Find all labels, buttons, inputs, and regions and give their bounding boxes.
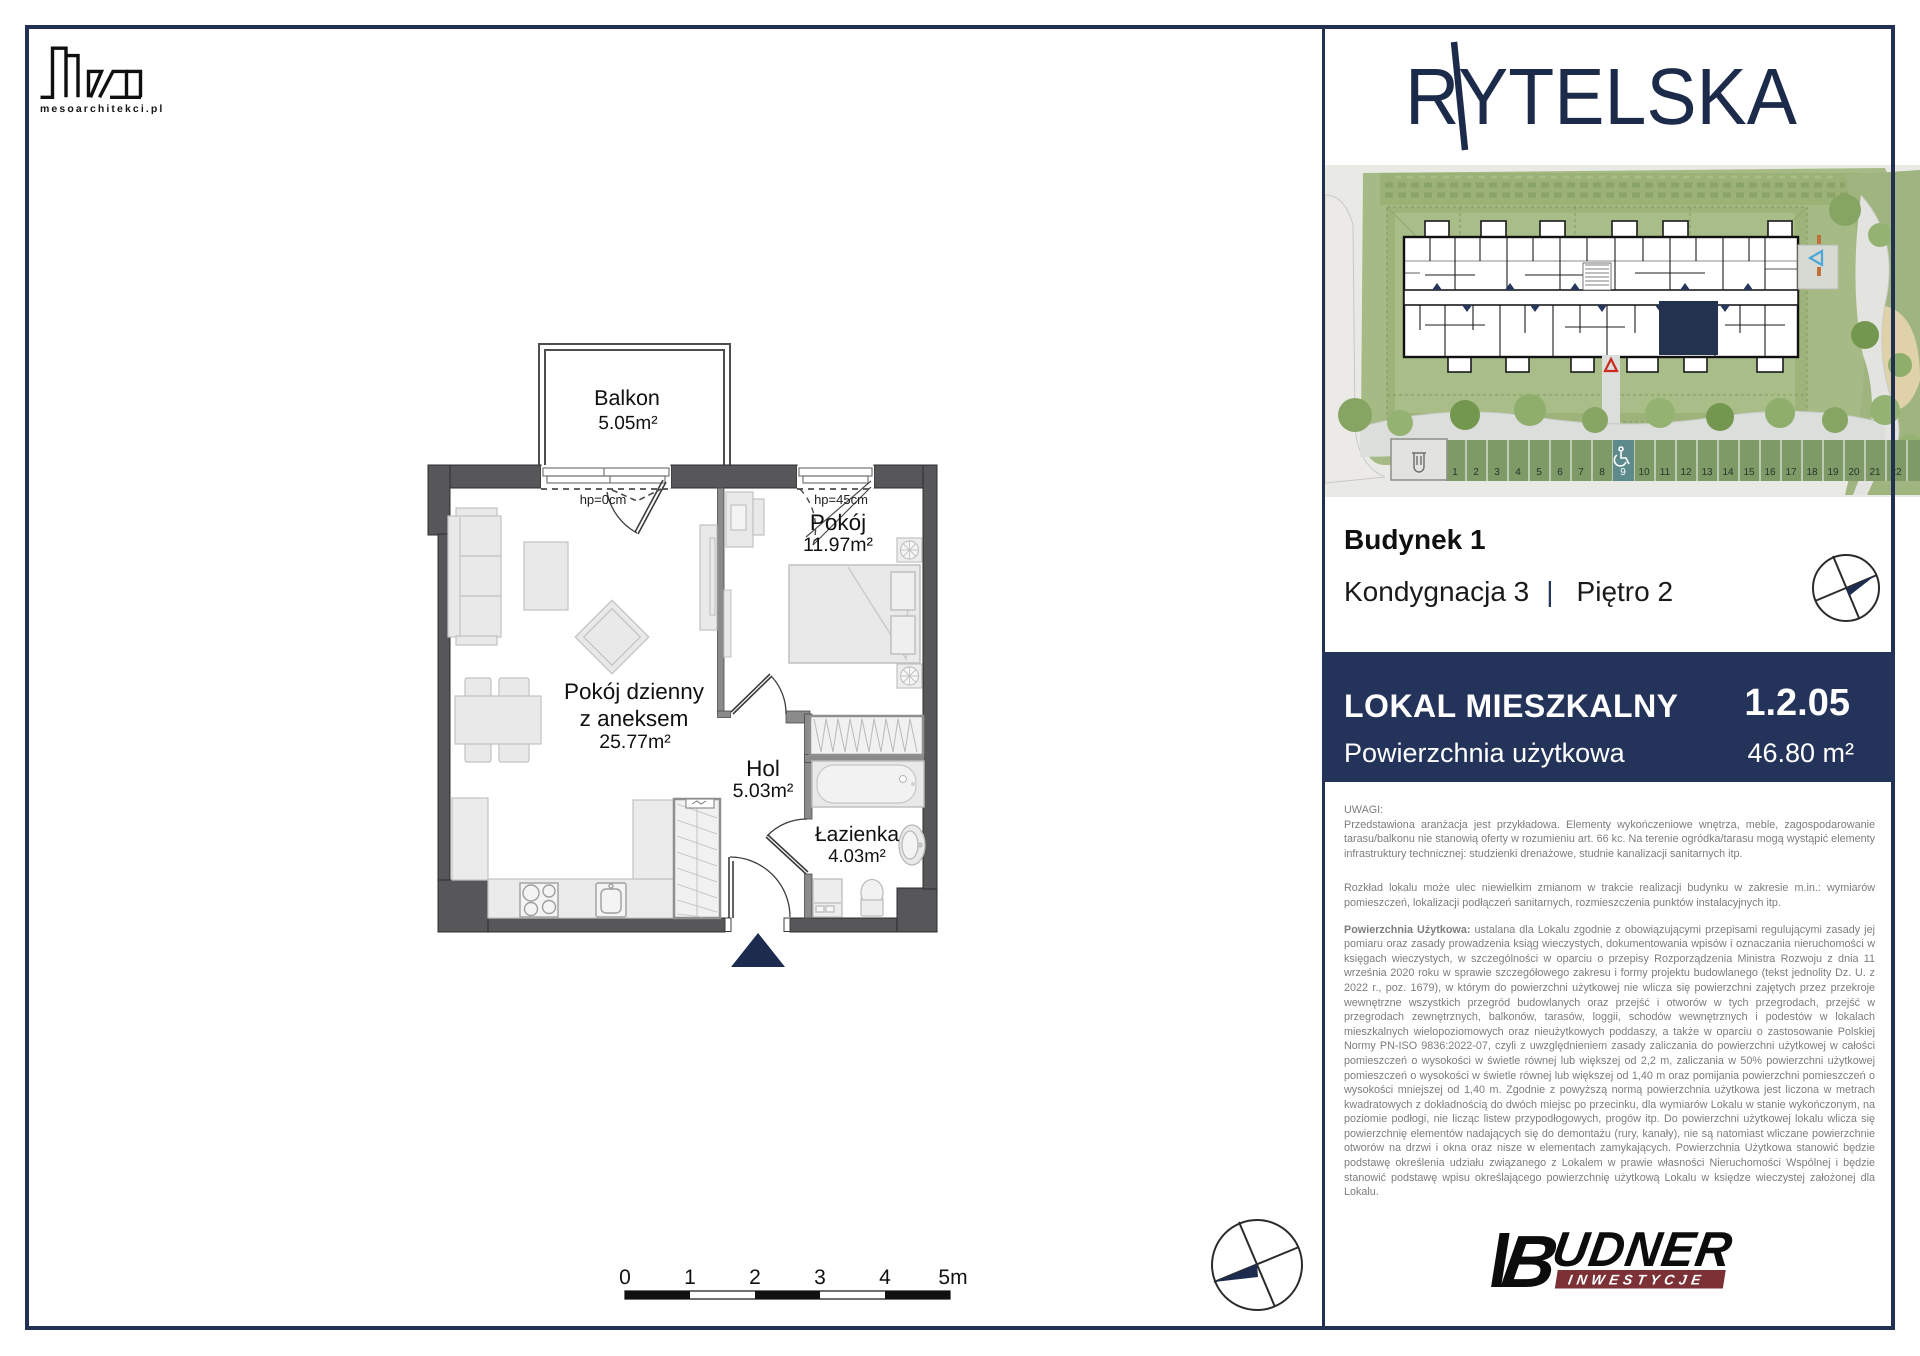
svg-text:25.77m²: 25.77m² xyxy=(599,731,671,753)
svg-text:4.03m²: 4.03m² xyxy=(828,845,886,866)
svg-text:Pokój: Pokój xyxy=(810,510,866,535)
svg-text:hp=0cm: hp=0cm xyxy=(580,492,627,507)
svg-text:1: 1 xyxy=(684,1266,696,1289)
svg-text:hp=45cm: hp=45cm xyxy=(814,492,868,507)
svg-text:Łazienka: Łazienka xyxy=(815,823,899,846)
svg-text:11.97m²: 11.97m² xyxy=(803,534,874,556)
svg-text:2: 2 xyxy=(749,1266,761,1289)
svg-text:UDNER: UDNER xyxy=(1549,1223,1737,1277)
svg-text:5.05m²: 5.05m² xyxy=(598,413,657,434)
svg-text:5.03m²: 5.03m² xyxy=(733,780,794,802)
svg-text:3: 3 xyxy=(814,1266,826,1289)
svg-text:5m: 5m xyxy=(938,1266,967,1289)
svg-text:Balkon: Balkon xyxy=(594,386,660,410)
svg-text:Pokój dzienny: Pokój dzienny xyxy=(564,679,705,704)
svg-text:Hol: Hol xyxy=(746,756,780,781)
svg-text:0: 0 xyxy=(619,1266,631,1289)
svg-text:4: 4 xyxy=(879,1266,891,1289)
svg-text:z aneksem: z aneksem xyxy=(580,706,689,731)
